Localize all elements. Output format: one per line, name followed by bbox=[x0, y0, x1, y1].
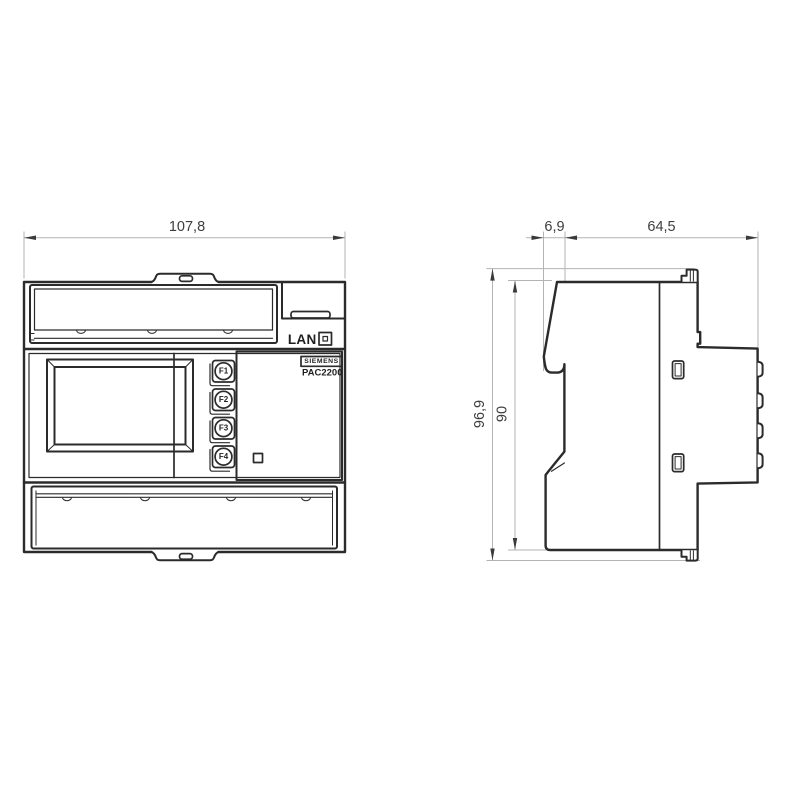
bottom-cover-outline bbox=[32, 487, 338, 549]
side-view: 6,9 64,5 96,9 90 bbox=[472, 219, 763, 561]
function-button-f3: F3 bbox=[210, 418, 235, 443]
front-bottom-terminal-cover bbox=[32, 487, 338, 549]
status-led-square bbox=[254, 454, 263, 463]
terminal-bump bbox=[758, 362, 763, 377]
button-label-f1: F1 bbox=[219, 367, 229, 376]
front-display bbox=[47, 360, 193, 452]
arrowhead-down bbox=[513, 538, 517, 550]
arrowhead bbox=[565, 236, 577, 241]
front-width-value: 107,8 bbox=[169, 219, 205, 235]
button-label-f2: F2 bbox=[219, 395, 229, 404]
side-body-outline bbox=[544, 282, 758, 550]
din-clip-top bbox=[682, 270, 698, 282]
function-button-f1: F1 bbox=[210, 361, 235, 386]
top-cover-outline bbox=[30, 285, 277, 343]
front-width-dimension: 107,8 bbox=[24, 219, 345, 279]
terminal-bump bbox=[758, 393, 763, 408]
model-label: PAC2200 bbox=[302, 368, 343, 379]
front-middle-section: SIEMENS PAC2200 F1 F2 bbox=[29, 352, 343, 481]
arrowhead-up bbox=[513, 281, 517, 293]
body-depth-value: 64,5 bbox=[647, 219, 675, 235]
bottom-cover-side-lines bbox=[36, 491, 333, 546]
lan-led-indicator bbox=[319, 333, 332, 346]
brand-label: SIEMENS bbox=[304, 358, 338, 365]
front-view: 107,8 LAN bbox=[24, 219, 345, 560]
terminal-bump bbox=[758, 423, 763, 438]
clip-outline bbox=[682, 550, 698, 560]
front-depth-value: 6,9 bbox=[544, 219, 564, 235]
terminal-bump bbox=[758, 453, 763, 468]
arrowhead bbox=[532, 236, 544, 241]
top-right-panel-slot bbox=[291, 312, 330, 319]
front-lan-area: LAN bbox=[288, 332, 332, 347]
display-bezel bbox=[47, 360, 193, 452]
arrowhead bbox=[746, 236, 758, 241]
function-button-f4: F4 bbox=[210, 446, 235, 471]
lan-led-inner-square bbox=[323, 337, 328, 342]
overall-height-value: 96,9 bbox=[472, 400, 488, 428]
arrowhead-down bbox=[490, 549, 494, 561]
pac2200-dimension-drawing: 107,8 LAN bbox=[0, 0, 800, 800]
function-button-f2: F2 bbox=[210, 389, 235, 414]
side-profile bbox=[544, 270, 763, 561]
clip-outline bbox=[682, 270, 698, 282]
top-tab-slot bbox=[180, 276, 193, 282]
front-function-buttons: F1 F2 F3 F4 bbox=[210, 361, 235, 472]
bottom-tab-slot bbox=[180, 554, 193, 560]
arrowhead-up bbox=[490, 269, 494, 281]
body-height-value: 90 bbox=[495, 406, 511, 422]
lan-label: LAN bbox=[288, 332, 317, 347]
arrowhead-left bbox=[24, 236, 36, 241]
button-label-f4: F4 bbox=[219, 452, 229, 461]
top-cover-inner-line bbox=[35, 289, 273, 330]
dimension-drawing-page: 107,8 LAN bbox=[0, 0, 800, 800]
din-clip-bottom bbox=[682, 550, 698, 560]
display-corner-miters bbox=[47, 360, 193, 452]
arrowhead-right bbox=[333, 236, 345, 241]
display-screen bbox=[55, 367, 186, 445]
button-label-f3: F3 bbox=[219, 424, 229, 433]
front-branding: SIEMENS PAC2200 bbox=[301, 357, 343, 379]
